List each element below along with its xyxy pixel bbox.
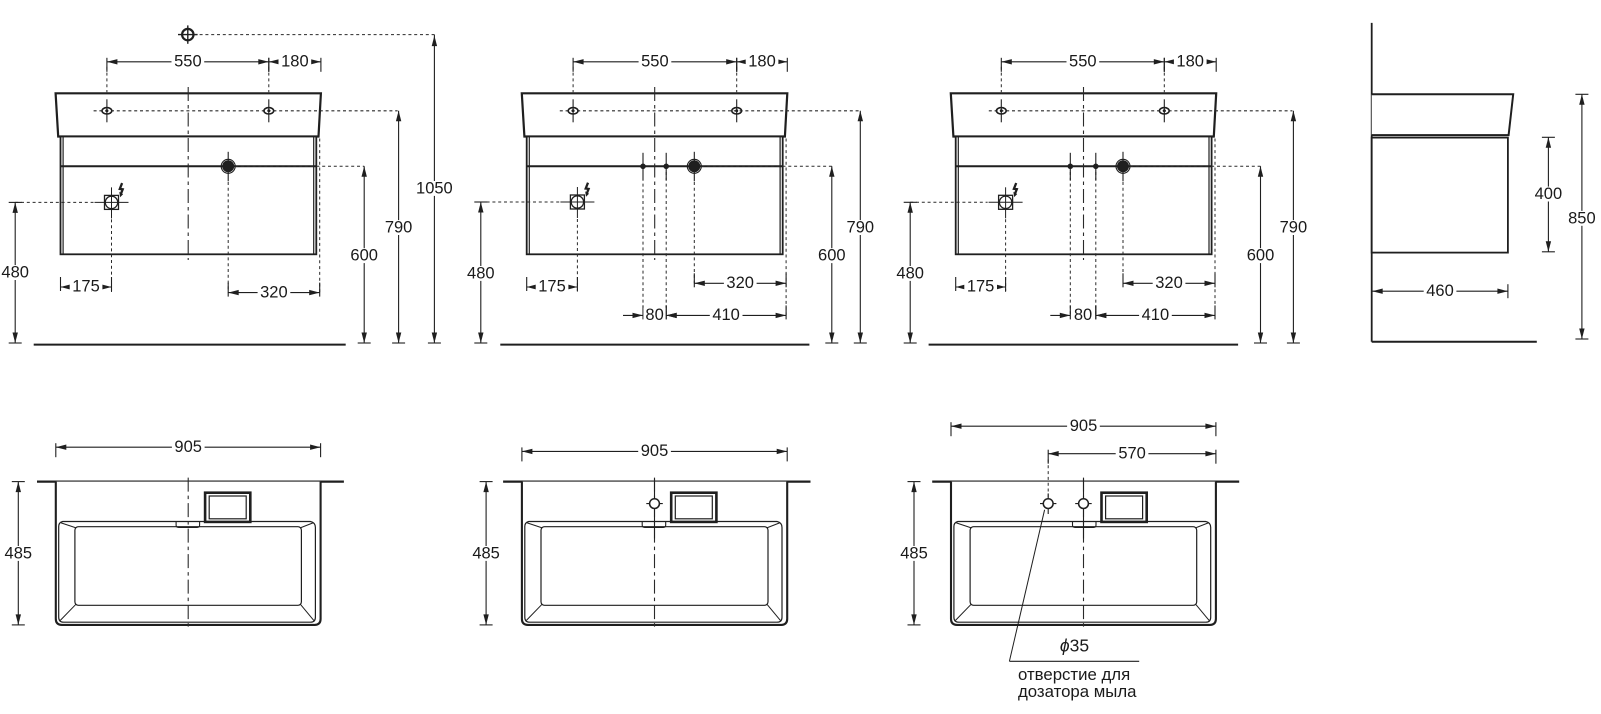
svg-text:320: 320	[260, 283, 288, 301]
svg-text:1050: 1050	[416, 179, 453, 197]
svg-text:790: 790	[1280, 219, 1308, 237]
svg-text:905: 905	[1070, 417, 1098, 435]
svg-text:410: 410	[712, 306, 740, 324]
svg-text:480: 480	[896, 264, 924, 282]
svg-text:850: 850	[1568, 209, 1596, 227]
svg-text:550: 550	[1069, 53, 1097, 71]
svg-text:180: 180	[1176, 53, 1204, 71]
svg-text:790: 790	[847, 219, 875, 237]
svg-text:180: 180	[281, 53, 309, 71]
svg-text:550: 550	[174, 53, 202, 71]
svg-text:дозатора мыла: дозатора мыла	[1018, 682, 1137, 701]
svg-text:600: 600	[818, 247, 846, 265]
svg-text:485: 485	[900, 544, 928, 562]
svg-text:485: 485	[5, 544, 33, 562]
svg-text:480: 480	[467, 264, 495, 282]
svg-text:480: 480	[1, 264, 29, 282]
svg-text:80: 80	[1074, 306, 1092, 324]
svg-text:320: 320	[726, 274, 754, 292]
svg-text:180: 180	[748, 53, 776, 71]
svg-text:550: 550	[641, 53, 669, 71]
svg-text:80: 80	[645, 306, 663, 324]
svg-text:460: 460	[1426, 282, 1454, 300]
svg-text:905: 905	[174, 438, 202, 456]
svg-text:600: 600	[1247, 247, 1275, 265]
svg-text:600: 600	[350, 247, 378, 265]
svg-text:ϕ35: ϕ35	[1060, 636, 1089, 656]
svg-text:410: 410	[1142, 306, 1170, 324]
svg-text:905: 905	[641, 442, 669, 460]
svg-text:175: 175	[538, 278, 566, 296]
svg-text:320: 320	[1155, 274, 1183, 292]
svg-text:175: 175	[967, 278, 995, 296]
svg-text:570: 570	[1118, 444, 1146, 462]
svg-text:175: 175	[72, 278, 100, 296]
svg-text:485: 485	[472, 544, 500, 562]
svg-text:790: 790	[385, 219, 413, 237]
svg-text:400: 400	[1535, 185, 1563, 203]
